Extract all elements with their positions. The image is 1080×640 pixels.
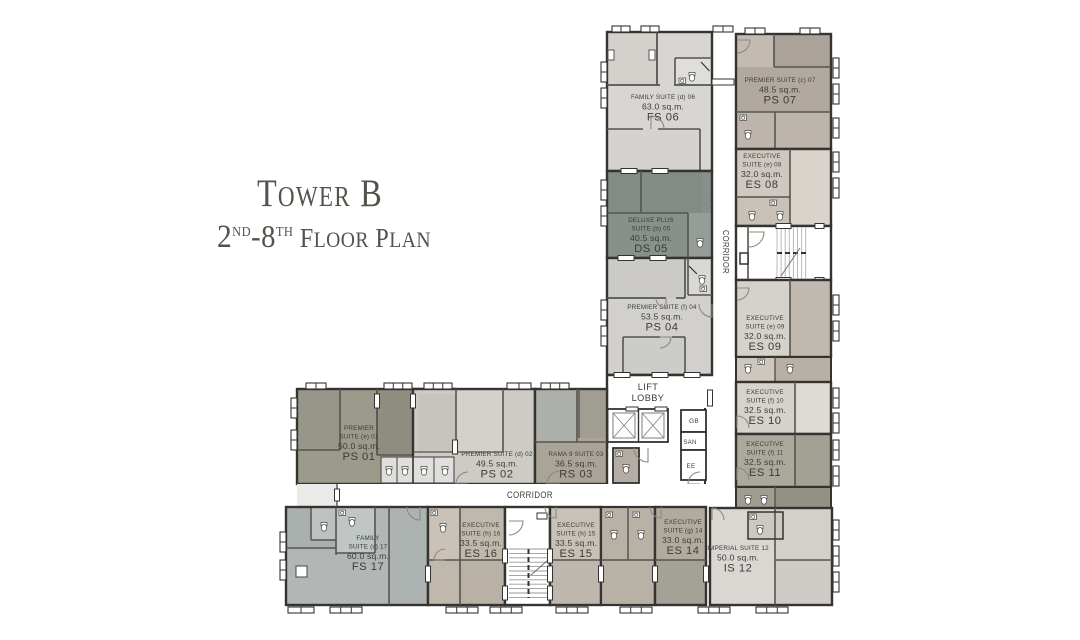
svg-text:33.0 sq.m.: 33.0 sq.m.: [662, 535, 704, 545]
svg-text:EXECUTIVE: EXECUTIVE: [743, 153, 781, 160]
svg-text:PS 01: PS 01: [343, 451, 376, 463]
svg-text:FS 06: FS 06: [647, 112, 679, 124]
svg-text:ES 14: ES 14: [667, 545, 700, 557]
svg-text:36.5 sq.m.: 36.5 sq.m.: [555, 458, 597, 468]
svg-text:SUITE (h) 15: SUITE (h) 15: [556, 530, 595, 537]
svg-text:FAMILY: FAMILY: [356, 535, 380, 542]
svg-text:GB: GB: [689, 418, 699, 425]
svg-text:SUITE (e) 08: SUITE (e) 08: [742, 161, 781, 168]
svg-text:33.5 sq.m.: 33.5 sq.m.: [460, 538, 502, 548]
svg-text:DELUXE PLUS: DELUXE PLUS: [628, 217, 674, 224]
svg-text:50.0 sq.m.: 50.0 sq.m.: [717, 552, 759, 562]
svg-text:ES 10: ES 10: [749, 415, 782, 427]
svg-text:CORRIDOR: CORRIDOR: [507, 490, 553, 501]
svg-text:FAMILY SUITE (d) 06: FAMILY SUITE (d) 06: [631, 94, 695, 101]
svg-text:RAMA 9 SUITE 03: RAMA 9 SUITE 03: [548, 451, 603, 458]
svg-text:50.0 sq.m.: 50.0 sq.m.: [338, 441, 380, 451]
svg-text:EXECUTIVE: EXECUTIVE: [746, 315, 784, 322]
svg-text:IMPERIAL SUITE 12: IMPERIAL SUITE 12: [707, 545, 769, 552]
svg-text:ES 15: ES 15: [560, 548, 593, 560]
svg-text:32.5 sq.m.: 32.5 sq.m.: [744, 457, 786, 467]
svg-text:EE: EE: [687, 463, 696, 470]
svg-text:ES 08: ES 08: [746, 179, 779, 191]
svg-text:LIFT: LIFT: [638, 382, 659, 392]
svg-text:PREMIER SUITE (d) 02: PREMIER SUITE (d) 02: [461, 451, 532, 458]
svg-text:32.5 sq.m.: 32.5 sq.m.: [744, 405, 786, 415]
svg-text:49.5 sq.m.: 49.5 sq.m.: [476, 458, 518, 468]
svg-text:EXECUTIVE: EXECUTIVE: [746, 441, 784, 448]
svg-text:40.5 sq.m.: 40.5 sq.m.: [630, 233, 672, 243]
svg-text:48.5 sq.m.: 48.5 sq.m.: [759, 84, 801, 94]
svg-text:PREMIER SUITE (c) 07: PREMIER SUITE (c) 07: [745, 77, 816, 84]
svg-text:33.5 sq.m.: 33.5 sq.m.: [555, 538, 597, 548]
svg-text:ES 09: ES 09: [749, 341, 782, 353]
svg-text:SUITE (e) 09: SUITE (e) 09: [745, 323, 784, 330]
svg-text:RS 03: RS 03: [559, 469, 593, 481]
svg-text:SUITE (c) 17: SUITE (c) 17: [349, 543, 388, 550]
svg-text:SUITE (h) 16: SUITE (h) 16: [461, 530, 500, 537]
svg-text:53.5 sq.m.: 53.5 sq.m.: [641, 311, 683, 321]
svg-text:PS 07: PS 07: [764, 95, 797, 107]
svg-text:SUITE (b) 05: SUITE (b) 05: [631, 225, 670, 232]
svg-text:SUITE (e) 01: SUITE (e) 01: [339, 433, 378, 440]
svg-text:DS 05: DS 05: [634, 243, 668, 255]
svg-text:PREMIER: PREMIER: [344, 425, 374, 432]
svg-text:SUITE (g) 14: SUITE (g) 14: [663, 527, 702, 534]
svg-text:SUITE (f) 10: SUITE (f) 10: [746, 397, 784, 404]
svg-text:LOBBY: LOBBY: [632, 393, 665, 403]
svg-text:EXECUTIVE: EXECUTIVE: [746, 389, 784, 396]
svg-text:SUITE (f) 11: SUITE (f) 11: [747, 449, 784, 456]
svg-text:32.0 sq.m.: 32.0 sq.m.: [744, 331, 786, 341]
svg-text:63.0 sq.m.: 63.0 sq.m.: [642, 101, 684, 111]
svg-text:EXECUTIVE: EXECUTIVE: [462, 522, 500, 529]
svg-text:EXECUTIVE: EXECUTIVE: [557, 522, 595, 529]
svg-text:32.0 sq.m.: 32.0 sq.m.: [741, 169, 783, 179]
svg-text:FS 17: FS 17: [352, 561, 384, 573]
svg-text:ES 11: ES 11: [749, 467, 781, 479]
svg-text:EXECUTIVE: EXECUTIVE: [664, 519, 702, 526]
svg-text:ES 16: ES 16: [465, 548, 498, 560]
svg-text:IS 12: IS 12: [724, 563, 753, 575]
svg-text:SAN: SAN: [683, 440, 696, 446]
svg-text:CORRIDOR: CORRIDOR: [721, 230, 731, 274]
svg-text:PS 02: PS 02: [481, 469, 514, 481]
svg-text:PS 04: PS 04: [646, 322, 679, 334]
svg-text:60.0 sq.m.: 60.0 sq.m.: [347, 551, 389, 561]
